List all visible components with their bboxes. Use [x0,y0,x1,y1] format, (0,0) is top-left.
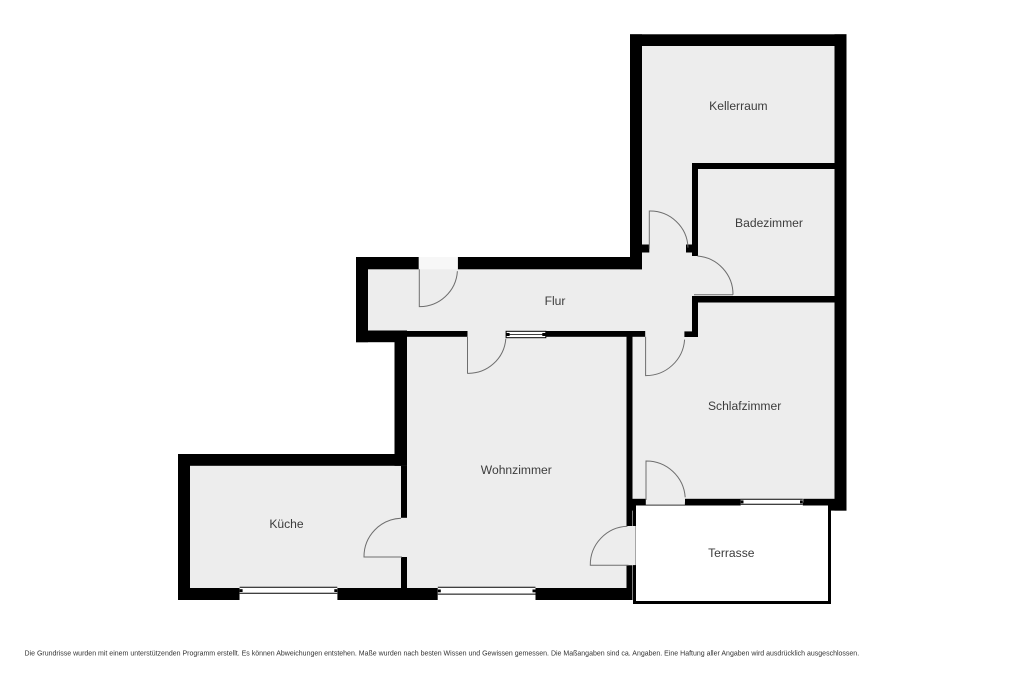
svg-text:Küche: Küche [269,517,304,531]
svg-text:Flur: Flur [545,294,566,308]
svg-text:Kellerraum: Kellerraum [709,99,767,113]
svg-text:Badezimmer: Badezimmer [735,216,803,230]
svg-text:Schlafzimmer: Schlafzimmer [708,399,781,413]
svg-text:Terrasse: Terrasse [708,546,755,560]
svg-text:Die Grundrisse wurden mit eine: Die Grundrisse wurden mit einem unterstü… [25,651,860,658]
svg-text:Wohnzimmer: Wohnzimmer [481,463,552,477]
